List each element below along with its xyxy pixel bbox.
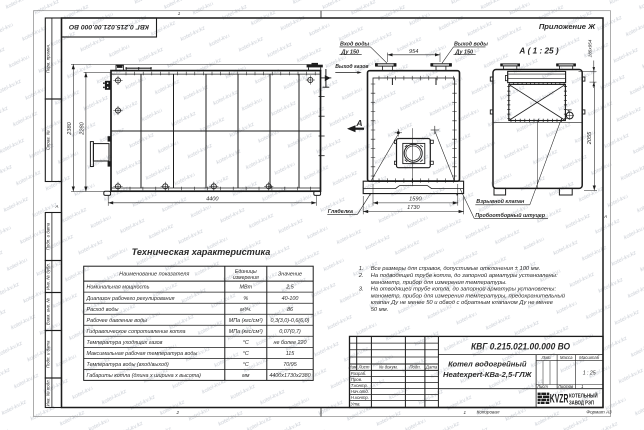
svg-text:Гидравлическое сопротивление к: Гидравлическое сопротивление котла — [87, 329, 186, 335]
svg-text:Наименование показателя: Наименование показателя — [119, 272, 189, 278]
svg-text:Расход воды: Расход воды — [87, 307, 119, 313]
svg-text:Габариты котла (длина х ширина: Габариты котла (длина х ширина х высота) — [87, 373, 202, 379]
svg-text:Heatexpert-КВа-2,5-ГЛЖ: Heatexpert-КВа-2,5-ГЛЖ — [443, 370, 533, 379]
svg-text:Инв. № дубл.: Инв. № дубл. — [45, 263, 50, 290]
svg-text:манометр, прибор для измерения: манометр, прибор для измерения температу… — [371, 292, 566, 299]
svg-text:А: А — [355, 118, 362, 128]
svg-text:Пров.: Пров. — [351, 377, 362, 382]
svg-text:Температура уходящих газов: Температура уходящих газов — [87, 340, 163, 346]
svg-text:Масштаб: Масштаб — [579, 355, 600, 360]
svg-text:ЗАВОД РЭП: ЗАВОД РЭП — [569, 400, 594, 406]
svg-text:А: А — [603, 214, 607, 219]
svg-text:1730: 1730 — [407, 205, 420, 211]
svg-text:Справ. №: Справ. № — [45, 130, 50, 150]
svg-text:2380: 2380 — [67, 121, 73, 135]
svg-text:Нач.отд.: Нач.отд. — [351, 389, 369, 394]
svg-text:мм: мм — [242, 373, 250, 379]
svg-text:Подп.: Подп. — [409, 365, 420, 370]
svg-text:манометр, прибор для измерения: манометр, прибор для измерения температу… — [371, 280, 507, 286]
svg-text:Инв. № подл.: Инв. № подл. — [45, 379, 50, 406]
svg-text:50 мм.: 50 мм. — [371, 307, 389, 313]
svg-text:115: 115 — [286, 351, 296, 357]
svg-text:1 : 25: 1 : 25 — [583, 371, 596, 377]
svg-text:Диапазон рабочего регулировани: Диапазон рабочего регулирования — [86, 296, 175, 302]
svg-text:2280: 2280 — [80, 121, 86, 135]
svg-text:2: 2 — [175, 410, 179, 415]
svg-text:Изм.: Изм. — [349, 365, 358, 370]
svg-text:Приложение Ж: Приложение Ж — [539, 22, 596, 31]
svg-text:Дата: Дата — [425, 365, 438, 370]
svg-text:Лист: Лист — [357, 365, 369, 370]
svg-text:2055: 2055 — [587, 131, 593, 145]
svg-text:Разраб.: Разраб. — [351, 371, 367, 376]
svg-text:МПа (кгс/см²): МПа (кгс/см²) — [229, 329, 263, 335]
svg-text:4400х1730х2380: 4400х1730х2380 — [269, 373, 310, 379]
svg-text:2,5: 2,5 — [285, 285, 294, 291]
svg-text:86: 86 — [287, 307, 293, 313]
svg-text:А: А — [54, 204, 58, 209]
svg-text:°С: °С — [243, 340, 249, 346]
svg-text:Номинальная мощность: Номинальная мощность — [87, 285, 150, 291]
svg-text:70/95: 70/95 — [283, 362, 297, 368]
svg-text:Все размеры для справок, допус: Все размеры для справок, допустимые откл… — [371, 266, 541, 272]
svg-text:измерения: измерения — [233, 275, 259, 281]
svg-text:Значение: Значение — [278, 272, 302, 278]
svg-text:не более 220: не более 220 — [274, 340, 307, 346]
svg-text:Взрывной клапан: Взрывной клапан — [476, 198, 525, 205]
svg-text:Н.контр.: Н.контр. — [351, 395, 369, 400]
svg-text:КОТЕЛЬНЫЙ: КОТЕЛЬНЫЙ — [569, 392, 598, 400]
svg-text:Взам. инв. №: Взам. инв. № — [45, 298, 50, 325]
svg-text:КВГ 0.215.021.00.000 ВО: КВГ 0.215.021.00.000 ВО — [68, 23, 149, 30]
svg-text:м³/ч.: м³/ч. — [240, 307, 251, 313]
svg-text:KVZR: KVZR — [550, 392, 569, 405]
svg-text:Утв.: Утв. — [351, 401, 361, 406]
svg-text:Лит.: Лит. — [541, 355, 552, 360]
svg-text:1590: 1590 — [409, 197, 422, 203]
svg-text:Котел водогрейный: Котел водогрейный — [448, 360, 527, 369]
svg-text:954: 954 — [409, 49, 418, 55]
svg-text:На подводящей трубе котла, до: На подводящей трубе котла, до запорной а… — [371, 272, 558, 279]
svg-text:На отводящей трубе котла, до з: На отводящей трубе котла, до запорной ар… — [371, 286, 557, 293]
svg-text:2.: 2. — [358, 273, 364, 279]
svg-text:Формат А3: Формат А3 — [586, 410, 612, 415]
svg-text:Т.контр.: Т.контр. — [351, 383, 368, 388]
svg-text:1.: 1. — [359, 266, 364, 272]
svg-text:Рабочее давление воды: Рабочее давление воды — [87, 318, 147, 324]
svg-text:МВт: МВт — [240, 285, 253, 291]
svg-text:Пробоотборный штуцер: Пробоотборный штуцер — [475, 212, 545, 219]
svg-text:КВГ 0.215.021.00.000 ВО: КВГ 0.215.021.00.000 ВО — [471, 341, 570, 351]
svg-text:Максимальная рабочая температу: Максимальная рабочая температура воды — [87, 351, 198, 357]
svg-text:%: % — [243, 296, 248, 302]
svg-text:0,3(3,0)-0,6(6,0): 0,3(3,0)-0,6(6,0) — [271, 318, 310, 324]
svg-text:Техническая характеристика: Техническая характеристика — [132, 247, 271, 257]
svg-text:40-100: 40-100 — [282, 296, 299, 302]
svg-text:°С: °С — [243, 351, 249, 357]
svg-text:0,07(0,7): 0,07(0,7) — [279, 329, 301, 335]
svg-text:А ( 1 : 25 ): А ( 1 : 25 ) — [518, 47, 558, 56]
svg-text:Температура воды (вход/выход): Температура воды (вход/выход) — [87, 362, 170, 368]
svg-text:Лист: Лист — [536, 384, 548, 389]
svg-text:клапан Ду не менее 50 и обвод: клапан Ду не менее 50 и обвод с обратным… — [371, 300, 554, 306]
svg-text:Подп. и дата: Подп. и дата — [45, 222, 50, 250]
svg-text:Выход газов: Выход газов — [335, 64, 368, 70]
svg-text:МПа (кгс/см²): МПа (кгс/см²) — [229, 318, 263, 324]
svg-text:185х954: 185х954 — [587, 39, 592, 57]
svg-text:°С: °С — [243, 362, 249, 368]
svg-text:№ докум.: № докум. — [379, 365, 398, 370]
svg-text:Перв. примен.: Перв. примен. — [45, 44, 50, 73]
svg-text:Масса: Масса — [560, 355, 573, 360]
svg-text:4400: 4400 — [206, 196, 219, 202]
svg-text:Листов: Листов — [557, 384, 574, 389]
svg-text:Подп. и дата: Подп. и дата — [45, 340, 50, 368]
svg-text:3.: 3. — [359, 287, 364, 293]
svg-text:1: 1 — [581, 384, 583, 389]
svg-text:Копировал: Копировал — [477, 410, 500, 415]
svg-text:Единицы: Единицы — [235, 269, 257, 275]
